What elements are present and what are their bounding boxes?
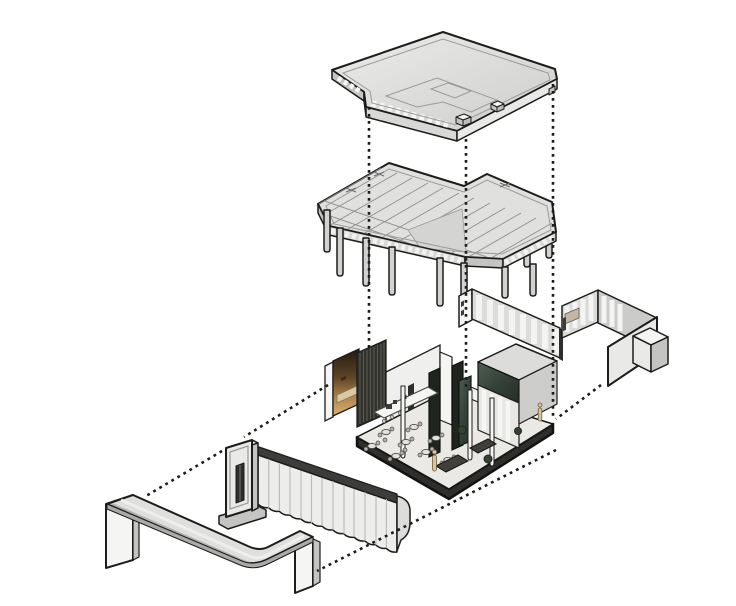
projection-line-walls-interior	[556, 385, 601, 419]
projection-line-portal-canopy	[146, 451, 222, 496]
canopy-leg-right-side	[313, 539, 320, 586]
roof-layer	[332, 32, 557, 141]
figure-1-body	[433, 455, 437, 471]
figure-2-head	[538, 403, 542, 407]
figure-1	[432, 450, 436, 471]
feature-wall-endcap	[325, 362, 333, 421]
rooftop-unit	[456, 114, 471, 126]
wall-side-box	[633, 328, 668, 372]
projection-line-interior-portal	[244, 385, 328, 437]
figure-2	[538, 403, 542, 421]
diagram-canvas	[0, 0, 736, 606]
interior-layer	[325, 340, 557, 499]
interior-dark-pier-1	[429, 368, 440, 457]
interior-white-pier	[440, 352, 452, 425]
figure-2-body	[538, 408, 542, 421]
exploded-axonometric-diagram	[0, 0, 736, 606]
feature-wall-amber	[333, 349, 359, 416]
wall-back-cabinet	[563, 317, 566, 331]
frame-fascia-step	[465, 257, 503, 268]
rooftop-unit-small	[491, 101, 504, 112]
figure-1-head	[432, 450, 436, 454]
fluted-wall-endcap	[397, 496, 410, 551]
